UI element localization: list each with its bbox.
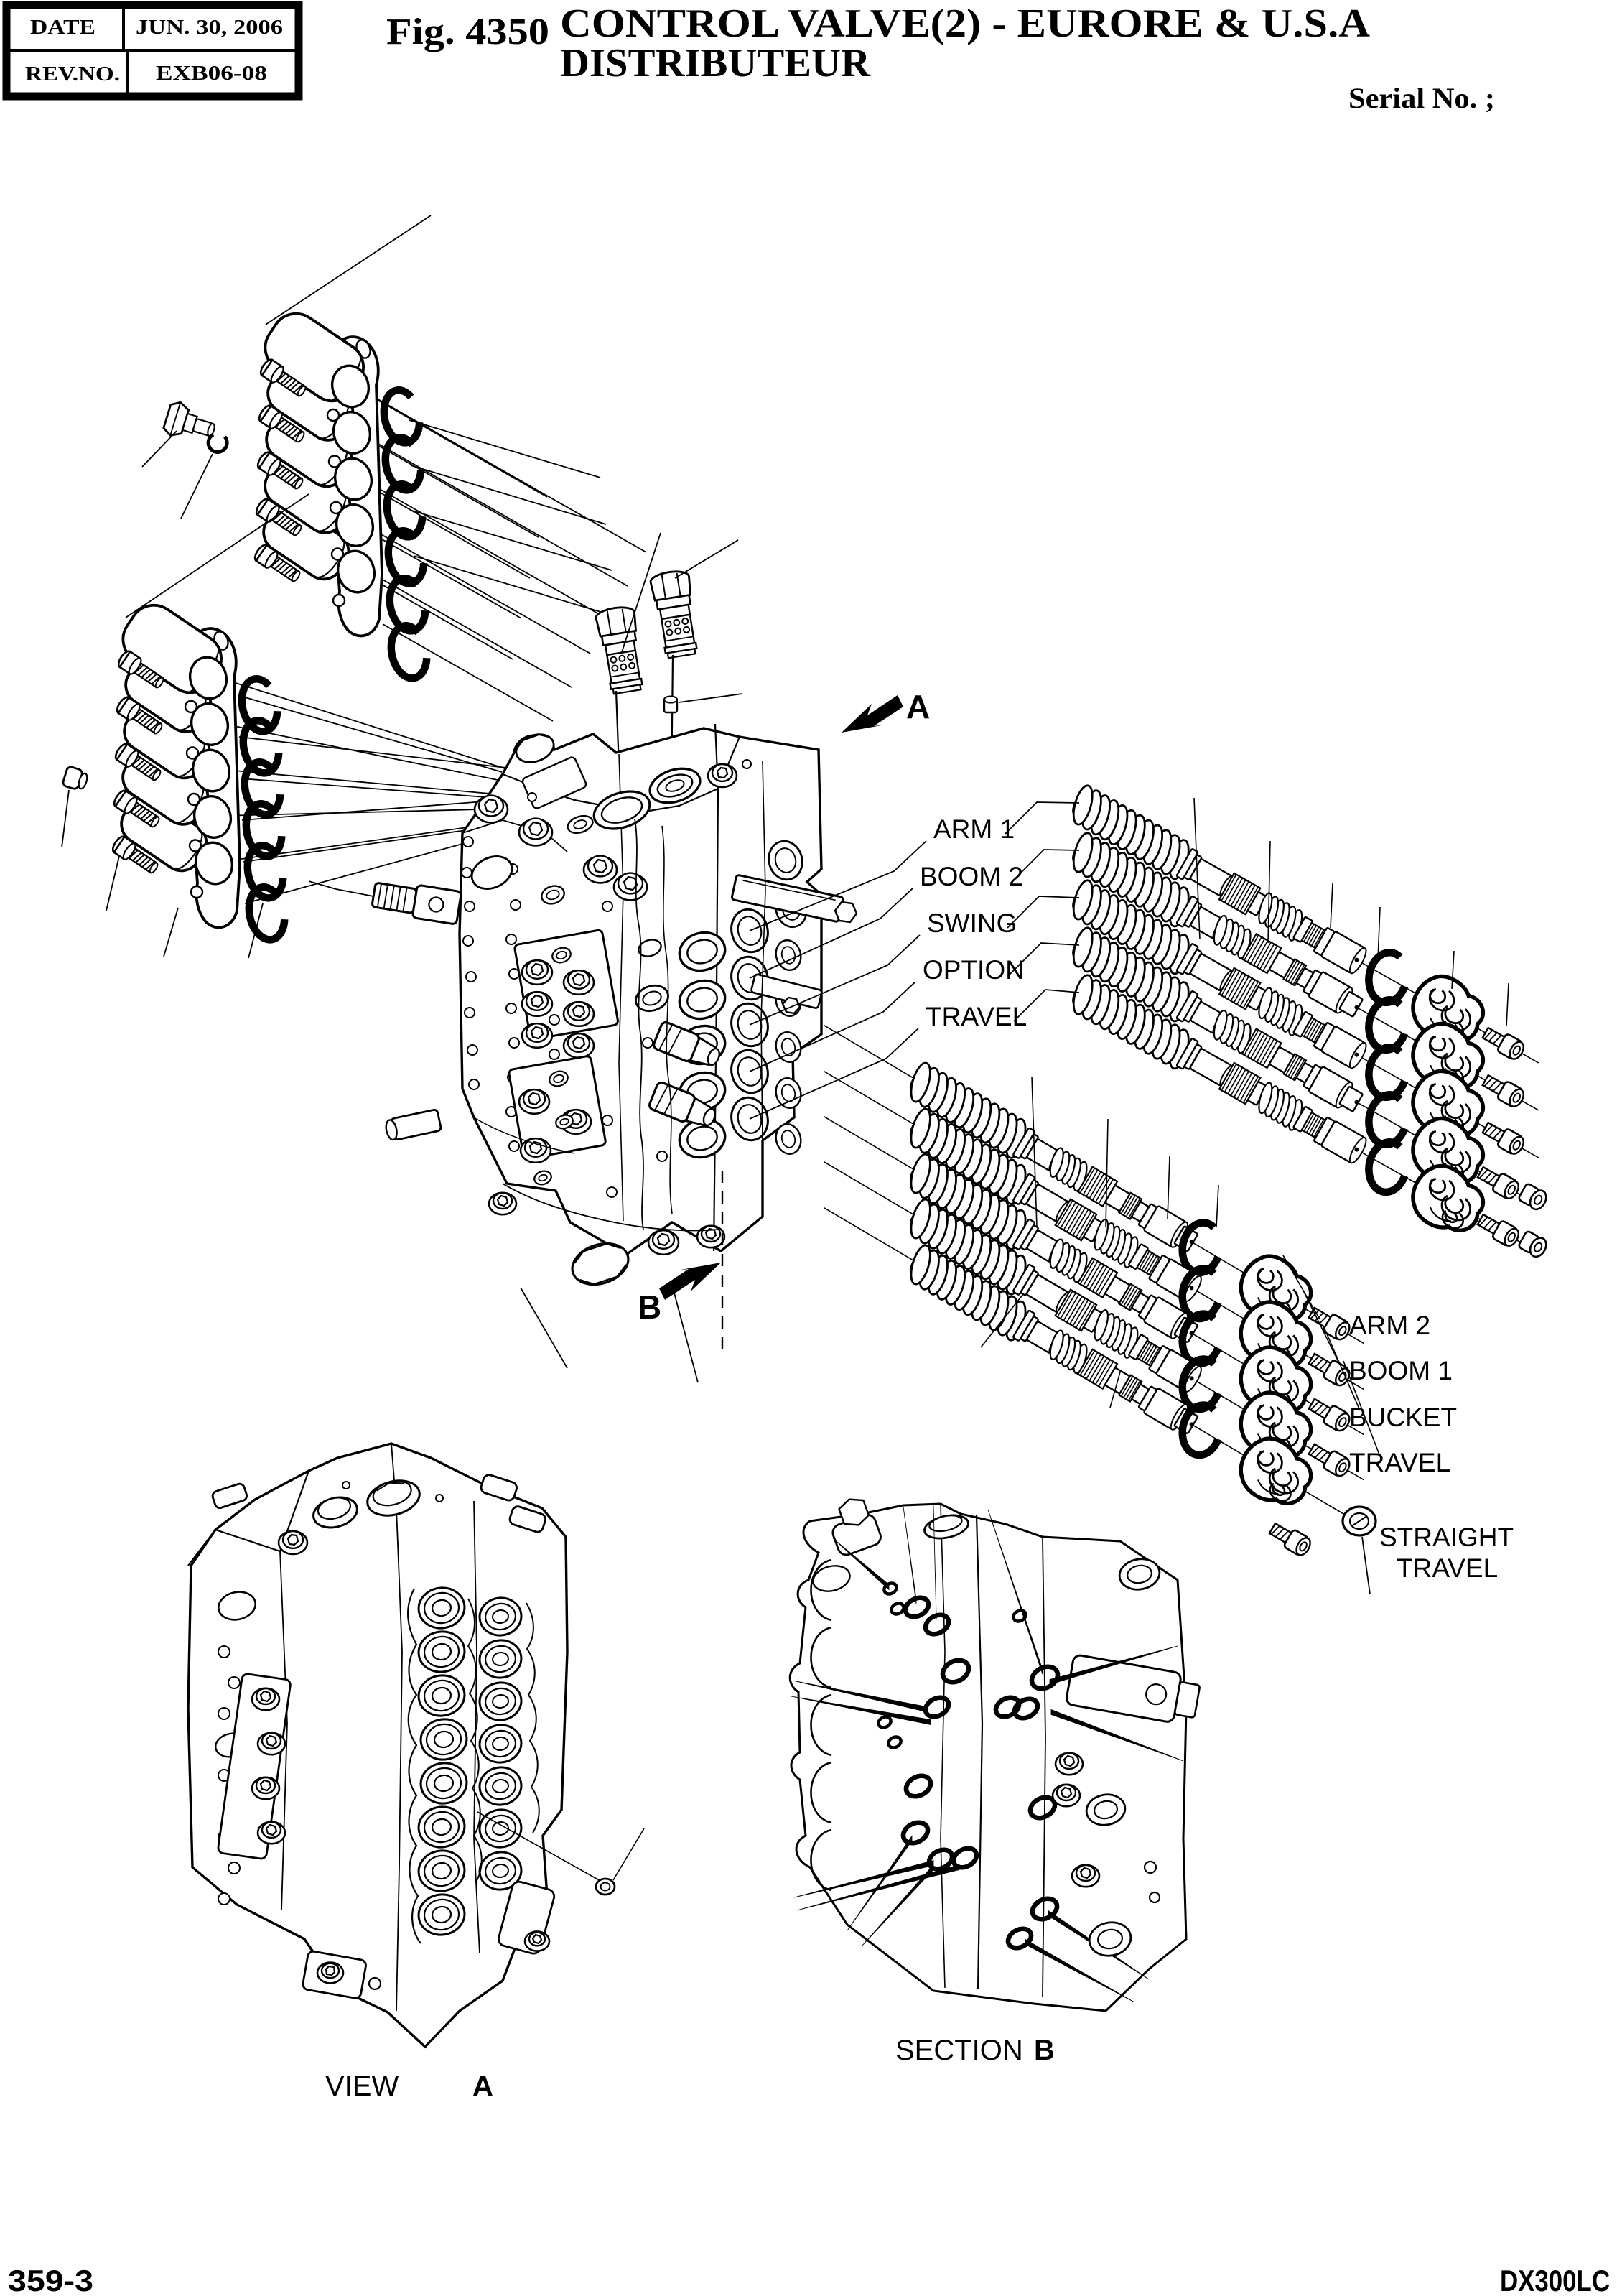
svg-text:A: A — [472, 2070, 493, 2102]
svg-text:EXB06-08: EXB06-08 — [156, 62, 267, 85]
svg-text:359-3: 359-3 — [8, 2264, 93, 2296]
svg-text:Serial No. ;: Serial No. ; — [1348, 82, 1495, 114]
svg-text:DX300LC: DX300LC — [1500, 2264, 1610, 2296]
svg-text:ARM 2: ARM 2 — [1349, 1311, 1430, 1340]
svg-text:BOOM 1: BOOM 1 — [1349, 1356, 1453, 1385]
svg-text:REV.NO.: REV.NO. — [25, 62, 120, 85]
svg-text:SECTION: SECTION — [895, 2035, 1023, 2066]
svg-text:TRAVEL: TRAVEL — [926, 1002, 1027, 1031]
svg-text:TRAVEL: TRAVEL — [1397, 1553, 1498, 1583]
svg-text:ARM 1: ARM 1 — [933, 814, 1015, 844]
svg-text:CONTROL VALVE(2) - EURORE: CONTROL VALVE(2) - EURORE & U.S.A — [560, 1, 1371, 46]
svg-text:Fig. 4350: Fig. 4350 — [386, 11, 549, 52]
svg-text:A: A — [906, 688, 930, 725]
svg-text:OPTION: OPTION — [923, 955, 1025, 985]
svg-text:DATE: DATE — [30, 16, 95, 39]
svg-text:B: B — [1034, 2035, 1055, 2066]
svg-text:DISTRIBUTEUR: DISTRIBUTEUR — [560, 41, 871, 85]
svg-text:VIEW: VIEW — [325, 2070, 399, 2102]
svg-text:JUN. 30, 2006: JUN. 30, 2006 — [136, 16, 283, 39]
svg-text:B: B — [638, 1288, 661, 1326]
svg-text:TRAVEL: TRAVEL — [1349, 1448, 1450, 1477]
svg-text:BOOM 2: BOOM 2 — [920, 862, 1023, 891]
svg-text:STRAIGHT: STRAIGHT — [1379, 1523, 1514, 1552]
svg-text:SWING: SWING — [927, 908, 1017, 938]
